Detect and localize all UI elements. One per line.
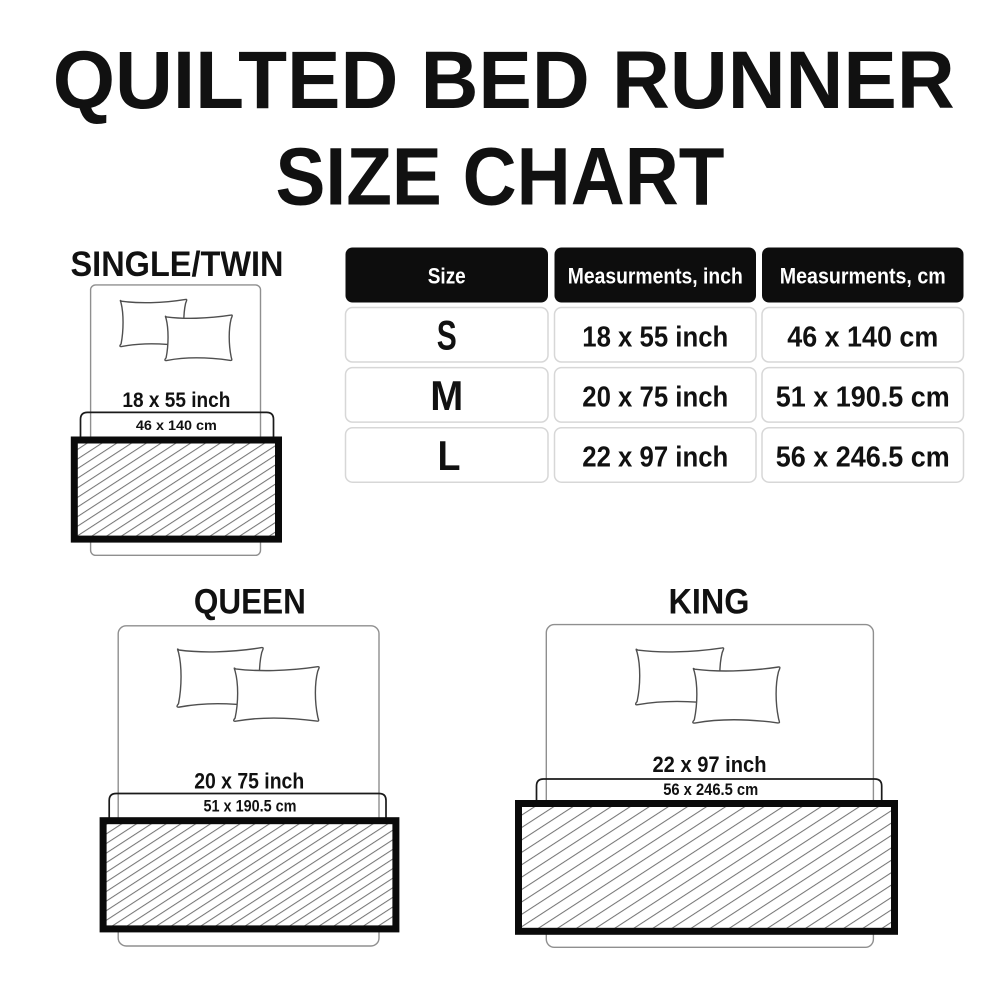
svg-text:51 x 190.5 cm: 51 x 190.5 cm [204,797,297,815]
svg-text:L: L [438,432,461,479]
svg-text:46 x 140 cm: 46 x 140 cm [136,417,217,433]
svg-text:56 x 246.5 cm: 56 x 246.5 cm [776,442,950,474]
svg-text:SINGLE/TWIN: SINGLE/TWIN [71,245,284,284]
svg-text:20 x 75 inch: 20 x 75 inch [582,382,728,414]
svg-text:KING: KING [669,583,750,622]
svg-text:M: M [430,372,463,419]
svg-text:Measurments, cm: Measurments, cm [780,264,946,289]
svg-text:SIZE CHART: SIZE CHART [276,132,725,223]
svg-text:QUEEN: QUEEN [194,583,306,622]
svg-text:22 x 97 inch: 22 x 97 inch [653,752,767,777]
svg-text:20 x 75 inch: 20 x 75 inch [194,768,304,793]
svg-text:56 x 246.5 cm: 56 x 246.5 cm [663,781,758,799]
svg-text:QUILTED BED RUNNER: QUILTED BED RUNNER [53,35,955,126]
svg-text:Measurments, inch: Measurments, inch [568,264,743,289]
svg-text:18 x 55 inch: 18 x 55 inch [582,321,728,353]
svg-text:S: S [437,312,457,359]
svg-text:51 x 190.5 cm: 51 x 190.5 cm [776,382,950,414]
svg-text:22 x 97 inch: 22 x 97 inch [582,442,728,474]
svg-text:Size: Size [428,264,466,289]
svg-text:46 x 140 cm: 46 x 140 cm [787,321,938,353]
svg-text:18 x 55 inch: 18 x 55 inch [122,389,230,412]
